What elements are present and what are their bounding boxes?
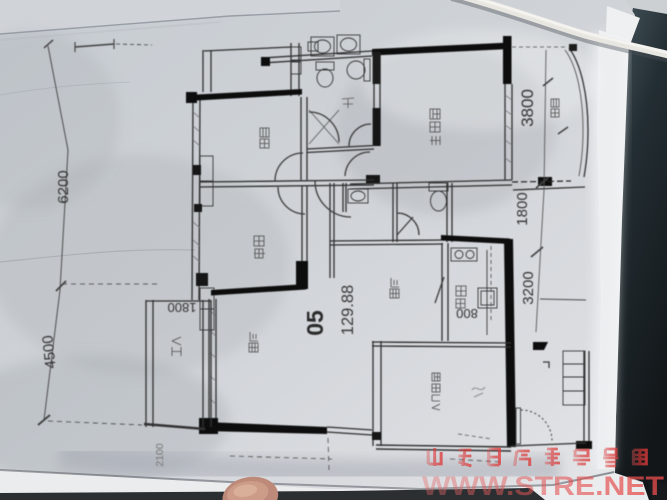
- svg-text:800: 800: [456, 306, 478, 321]
- svg-text:3800: 3800: [518, 89, 537, 127]
- svg-text:3200: 3200: [520, 271, 537, 304]
- svg-text:4500: 4500: [39, 334, 59, 369]
- svg-text:WWW.STRE.NET: WWW.STRE.NET: [422, 471, 665, 500]
- svg-text:1800: 1800: [514, 192, 531, 225]
- svg-text:1800: 1800: [168, 300, 197, 315]
- svg-text:6200: 6200: [55, 170, 72, 203]
- svg-text:2100: 2100: [154, 443, 166, 467]
- svg-text:05: 05: [302, 310, 328, 336]
- svg-text:129.88: 129.88: [339, 285, 357, 335]
